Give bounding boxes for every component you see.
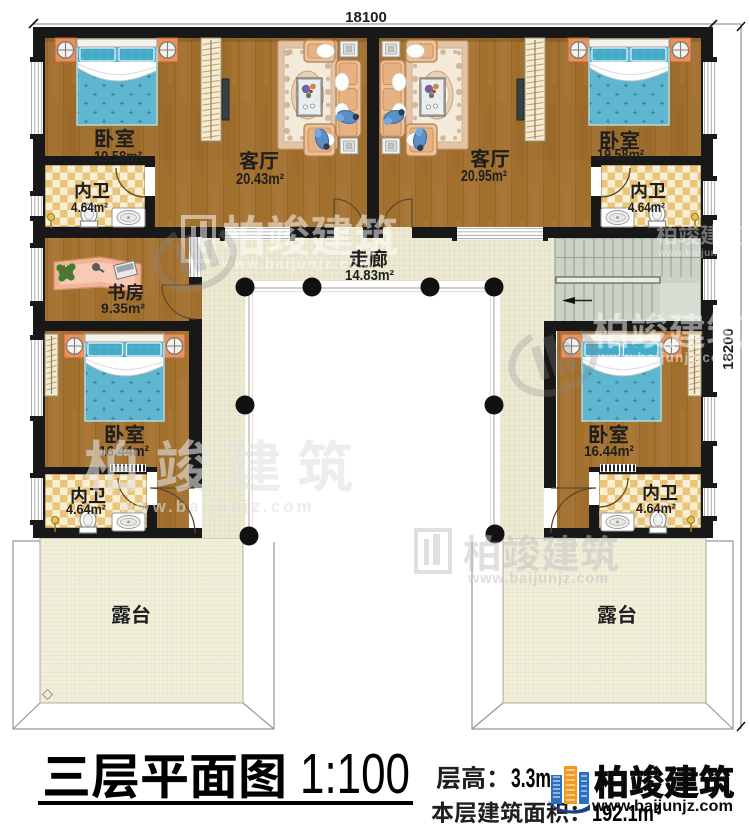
svg-text:20.95m²: 20.95m² (461, 168, 507, 185)
svg-text:www.baijunjz.com: www.baijunjz.com (657, 248, 750, 259)
svg-text:4.64m²: 4.64m² (66, 502, 106, 517)
svg-text:3.3m: 3.3m (511, 763, 551, 793)
svg-text:www.baijunjz.com: www.baijunjz.com (119, 497, 315, 516)
svg-text:16.44m²: 16.44m² (584, 443, 634, 460)
svg-text:www.baijunjz.com: www.baijunjz.com (591, 798, 733, 815)
svg-text:4.64m²: 4.64m² (71, 199, 108, 215)
svg-text:4.64m²: 4.64m² (636, 501, 676, 516)
svg-text:19.58m²: 19.58m² (94, 149, 142, 166)
svg-text:4.64m²: 4.64m² (628, 199, 665, 215)
svg-text:19.58m²: 19.58m² (597, 147, 644, 164)
svg-text:www.baijunjz.com: www.baijunjz.com (467, 571, 609, 587)
svg-text:www.baijunjz.com: www.baijunjz.com (221, 256, 374, 271)
svg-text:www.baijunjz.com: www.baijunjz.com (597, 350, 734, 365)
svg-text:18100: 18100 (345, 9, 387, 26)
svg-text:9.35m²: 9.35m² (101, 300, 145, 316)
svg-text:20.43m²: 20.43m² (236, 171, 284, 188)
svg-text:1:100: 1:100 (300, 742, 410, 806)
